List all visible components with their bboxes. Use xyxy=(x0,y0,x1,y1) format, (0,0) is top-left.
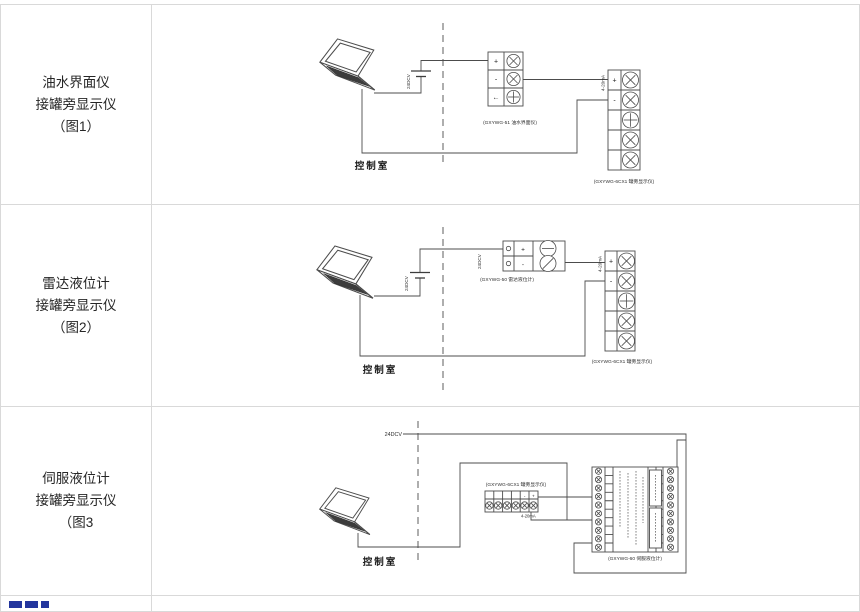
row1-wiring-diagram: 24DCV + - ← (GXYWG-51 油水界面仪) xyxy=(152,5,858,204)
row1-control-room-label: 控制室 xyxy=(355,160,390,172)
terminal-plus: + xyxy=(612,78,616,85)
clipped-blue-text-fragment xyxy=(25,601,38,608)
dc-power-symbol xyxy=(411,71,431,77)
row2-control-room-label: 控制室 xyxy=(363,364,398,376)
row3-title-line2: 接罐旁显示仪 xyxy=(36,490,117,512)
row3-diagram-cell: 24DCV (GXYWG-6CX1 罐旁显示仪) xyxy=(152,407,859,595)
diagram-table: 油水界面仪 接罐旁显示仪 （图1） xyxy=(0,4,860,612)
table-row: 伺服液位计 接罐旁显示仪 （图3 24DCV (GXYWG-6CX1 罐旁显示仪… xyxy=(1,407,859,596)
terminal-plus: + xyxy=(521,247,525,254)
row1-display-terminal-block: + - xyxy=(608,70,640,170)
row1-transmitter-terminal-block: + - ← xyxy=(488,52,523,106)
clipped-next-row-body xyxy=(152,596,859,611)
clipped-blue-text-fragment xyxy=(9,601,22,608)
row1-title-line1: 油水界面仪 xyxy=(42,72,110,94)
row1-diagram-cell: 24DCV + - ← (GXYWG-51 油水界面仪) xyxy=(152,5,859,204)
row3-display-label: (GXYWG-6CX1 罐旁显示仪) xyxy=(486,481,547,488)
terminal-plus: + xyxy=(532,494,535,499)
row3-display-terminal-block: - + xyxy=(485,491,538,512)
row1-title-line3: （图1） xyxy=(52,116,100,138)
laptop-icon xyxy=(317,246,373,298)
row2-title: 雷达液位计 接罐旁显示仪 （图2） xyxy=(1,205,152,406)
table-row: 雷达液位计 接罐旁显示仪 （图2） 24DCV xyxy=(1,205,859,407)
terminal-minus: - xyxy=(522,262,524,269)
row2-title-line3: （图2） xyxy=(52,317,100,339)
row3-servo-terminal-box xyxy=(592,467,678,552)
row2-title-line2: 接罐旁显示仪 xyxy=(36,295,117,317)
clipped-next-row-label xyxy=(1,596,152,611)
clipped-blue-text-fragment xyxy=(41,601,49,608)
row2-wiring xyxy=(360,249,605,356)
row1-signal-label: 4-20mA xyxy=(601,74,606,91)
row2-signal-label: 4-20mA xyxy=(598,255,603,272)
laptop-icon xyxy=(320,39,375,90)
row3-power-label: 24DCV xyxy=(385,432,403,438)
row3-control-room-label: 控制室 xyxy=(363,556,398,568)
row1-battery-voltage-label: 24DCV xyxy=(406,73,411,89)
row2-transmitter-terminal-block: + - xyxy=(503,241,565,272)
table-row: 油水界面仪 接罐旁显示仪 （图1） xyxy=(1,5,859,205)
row1-title: 油水界面仪 接罐旁显示仪 （图1） xyxy=(1,5,152,204)
terminal-shield-arrow: ← xyxy=(493,95,500,102)
row2-battery-voltage-label: 24DCV xyxy=(404,275,409,291)
row1-display-label: (GXYWG-6CX1 罐旁显示仪) xyxy=(594,178,655,185)
row2-title-line1: 雷达液位计 xyxy=(42,273,110,295)
row2-diagram-cell: 24DCV + - 24DCV (GXYWG-50 雷达液位计) xyxy=(152,205,859,406)
row3-title-line1: 伺服液位计 xyxy=(42,468,110,490)
row3-servo-label: (GXYWG-60 伺服液位计) xyxy=(608,555,662,562)
row3-title-line3: （图3 xyxy=(59,512,94,534)
row3-wiring-diagram: 24DCV (GXYWG-6CX1 罐旁显示仪) xyxy=(152,407,858,595)
row1-transmitter-label: (GXYWG-51 油水界面仪) xyxy=(483,119,537,126)
row2-display-terminal-block: + - xyxy=(605,251,635,351)
terminal-plus: + xyxy=(609,259,613,266)
row2-power-label: 24DCV xyxy=(477,253,482,269)
row1-title-line2: 接罐旁显示仪 xyxy=(36,94,117,116)
row2-display-label: (GXYWG-6CX1 罐旁显示仪) xyxy=(592,358,653,365)
dc-power-symbol xyxy=(410,273,430,279)
row2-transmitter-label: (GXYWG-50 雷达液位计) xyxy=(480,276,534,283)
laptop-icon xyxy=(320,488,370,535)
row3-title: 伺服液位计 接罐旁显示仪 （图3 xyxy=(1,407,152,595)
row3-signal-label: 4-20mA xyxy=(521,514,536,519)
row1-wiring xyxy=(362,61,608,154)
clipped-next-row xyxy=(1,596,859,611)
row2-wiring-diagram: 24DCV + - 24DCV (GXYWG-50 雷达液位计) xyxy=(152,205,858,406)
terminal-plus: + xyxy=(494,59,498,66)
